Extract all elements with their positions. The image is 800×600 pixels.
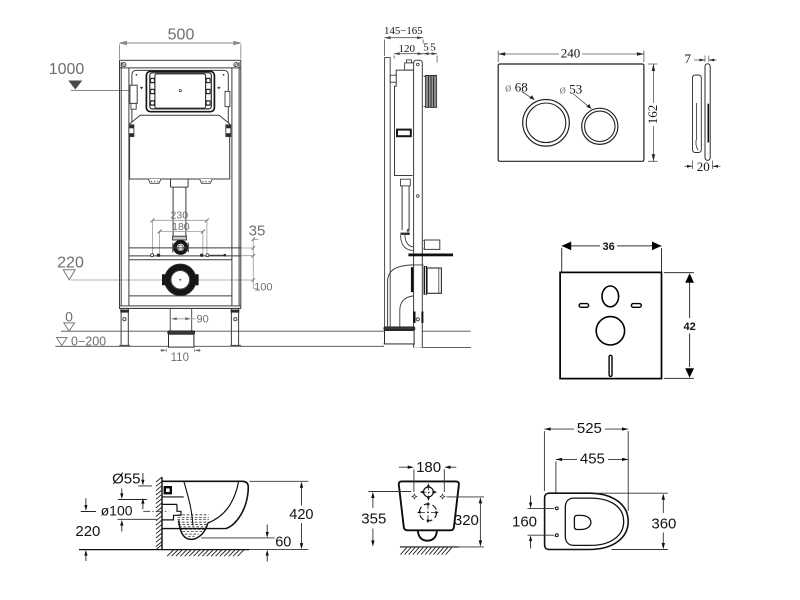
svg-text:42: 42: [683, 321, 695, 333]
svg-text:180: 180: [172, 221, 190, 233]
svg-text:500: 500: [168, 27, 195, 44]
svg-text:100: 100: [254, 281, 272, 293]
svg-text:145−165: 145−165: [384, 25, 422, 37]
svg-text:455: 455: [580, 451, 605, 468]
svg-text:20: 20: [697, 159, 710, 174]
svg-text:420: 420: [289, 507, 313, 523]
svg-text:60: 60: [275, 534, 291, 550]
svg-text:525: 525: [577, 420, 602, 437]
svg-text:355: 355: [361, 510, 386, 527]
svg-text:180: 180: [416, 459, 441, 476]
svg-text:220: 220: [75, 523, 100, 540]
svg-text:110: 110: [171, 352, 189, 364]
svg-text:ø 53: ø 53: [560, 81, 583, 96]
svg-text:36: 36: [602, 241, 614, 253]
svg-text:35: 35: [249, 223, 266, 240]
svg-text:240: 240: [561, 46, 581, 61]
svg-text:162: 162: [645, 105, 660, 125]
svg-text:ø100: ø100: [101, 502, 133, 518]
svg-text:120: 120: [399, 43, 416, 55]
svg-text:Ø55: Ø55: [112, 471, 140, 488]
svg-text:90: 90: [197, 314, 209, 326]
svg-text:ø 68: ø 68: [505, 79, 528, 94]
svg-text:160: 160: [512, 514, 537, 531]
svg-text:0: 0: [65, 308, 73, 324]
svg-text:220: 220: [57, 254, 84, 271]
svg-text:320: 320: [454, 512, 479, 529]
svg-text:360: 360: [651, 515, 676, 532]
svg-text:55: 55: [423, 42, 437, 54]
svg-text:1000: 1000: [49, 61, 85, 78]
svg-text:230: 230: [171, 210, 189, 222]
svg-text:7: 7: [684, 51, 691, 66]
